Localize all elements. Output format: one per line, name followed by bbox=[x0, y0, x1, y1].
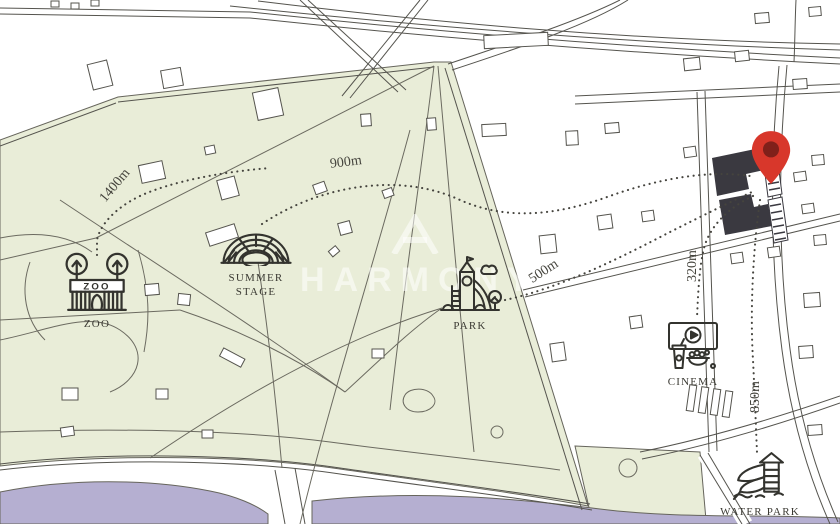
poi-water-park[interactable]: WATER PARK bbox=[716, 450, 804, 519]
poi-zoo-label: ZOO bbox=[58, 318, 136, 331]
poi-zoo[interactable]: ZOO ZOO bbox=[58, 248, 136, 331]
poi-summer-stage[interactable]: SUMMER STAGE bbox=[218, 222, 294, 299]
svg-text:ZOO: ZOO bbox=[83, 282, 110, 293]
poi-park-label: PARK bbox=[436, 320, 504, 333]
map: HARMONY ZOO ZOO SUMMER bbox=[0, 0, 840, 524]
poi-summer-stage-label-1: SUMMER bbox=[218, 272, 294, 285]
water-left bbox=[0, 482, 268, 524]
poi-park[interactable]: PARK bbox=[436, 256, 504, 333]
distance-label-320m: 320m bbox=[685, 250, 701, 282]
poi-summer-stage-label-2: STAGE bbox=[218, 286, 294, 299]
poi-cinema[interactable]: CINEMA bbox=[664, 320, 722, 389]
poi-water-park-label: WATER PARK bbox=[716, 506, 804, 519]
cinema-icon bbox=[664, 320, 722, 370]
location-pin[interactable] bbox=[748, 128, 794, 188]
distance-label-850m: 850m bbox=[748, 381, 764, 413]
park-icon bbox=[436, 256, 504, 314]
route-water-park bbox=[752, 200, 760, 452]
poi-cinema-label: CINEMA bbox=[664, 376, 722, 389]
zoo-icon: ZOO bbox=[58, 248, 136, 312]
summer-stage-icon bbox=[218, 222, 294, 266]
water-park-icon bbox=[728, 450, 792, 500]
